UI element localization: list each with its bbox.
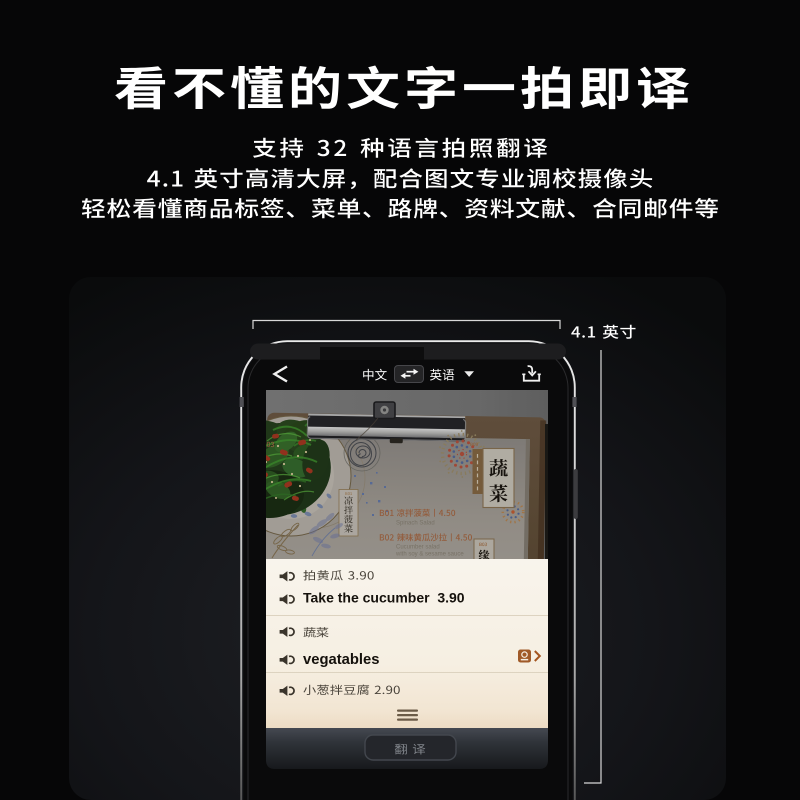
svg-text:vegatables: vegatables [303, 652, 380, 668]
svg-text:Take the cucumber 3.90: Take the cucumber 3.90 [303, 590, 465, 606]
